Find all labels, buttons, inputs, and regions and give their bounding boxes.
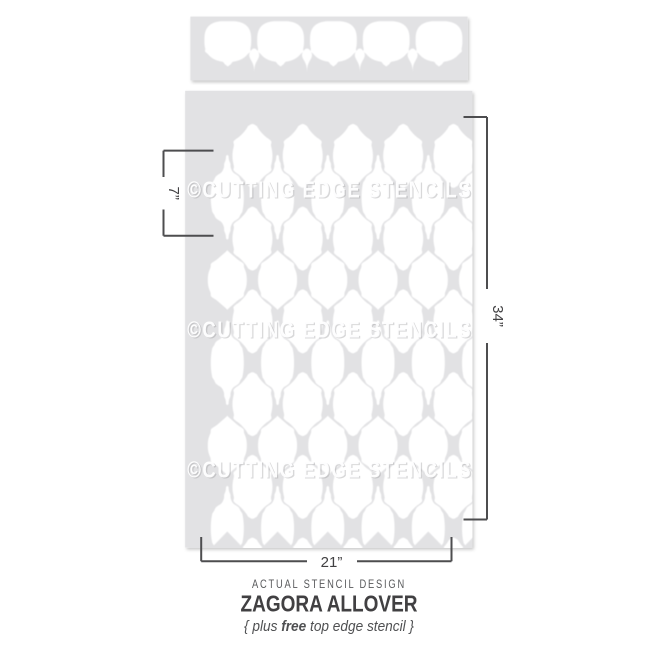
svg-text:34”: 34” xyxy=(489,305,506,327)
svg-text:21”: 21” xyxy=(321,554,343,571)
svg-text:ZAGORA ALLOVER: ZAGORA ALLOVER xyxy=(241,591,418,617)
svg-text:©CUTTING EDGE STENCILS: ©CUTTING EDGE STENCILS xyxy=(187,177,472,203)
svg-text:{ plus free top edge stencil }: { plus free top edge stencil } xyxy=(244,618,414,635)
svg-text:ACTUAL STENCIL DESIGN: ACTUAL STENCIL DESIGN xyxy=(252,579,406,591)
svg-text:©CUTTING EDGE STENCILS: ©CUTTING EDGE STENCILS xyxy=(187,317,472,343)
svg-text:©CUTTING EDGE STENCILS: ©CUTTING EDGE STENCILS xyxy=(187,457,472,483)
svg-text:7”: 7” xyxy=(165,187,182,200)
